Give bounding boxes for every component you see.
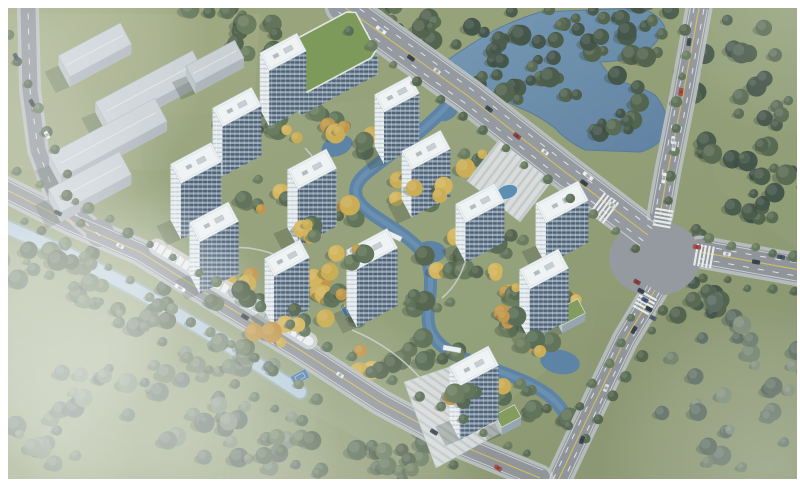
- aerial-masterplan-render: [0, 0, 800, 485]
- haze-layer: [0, 0, 800, 485]
- masterplan-aerial-svg: [0, 0, 800, 485]
